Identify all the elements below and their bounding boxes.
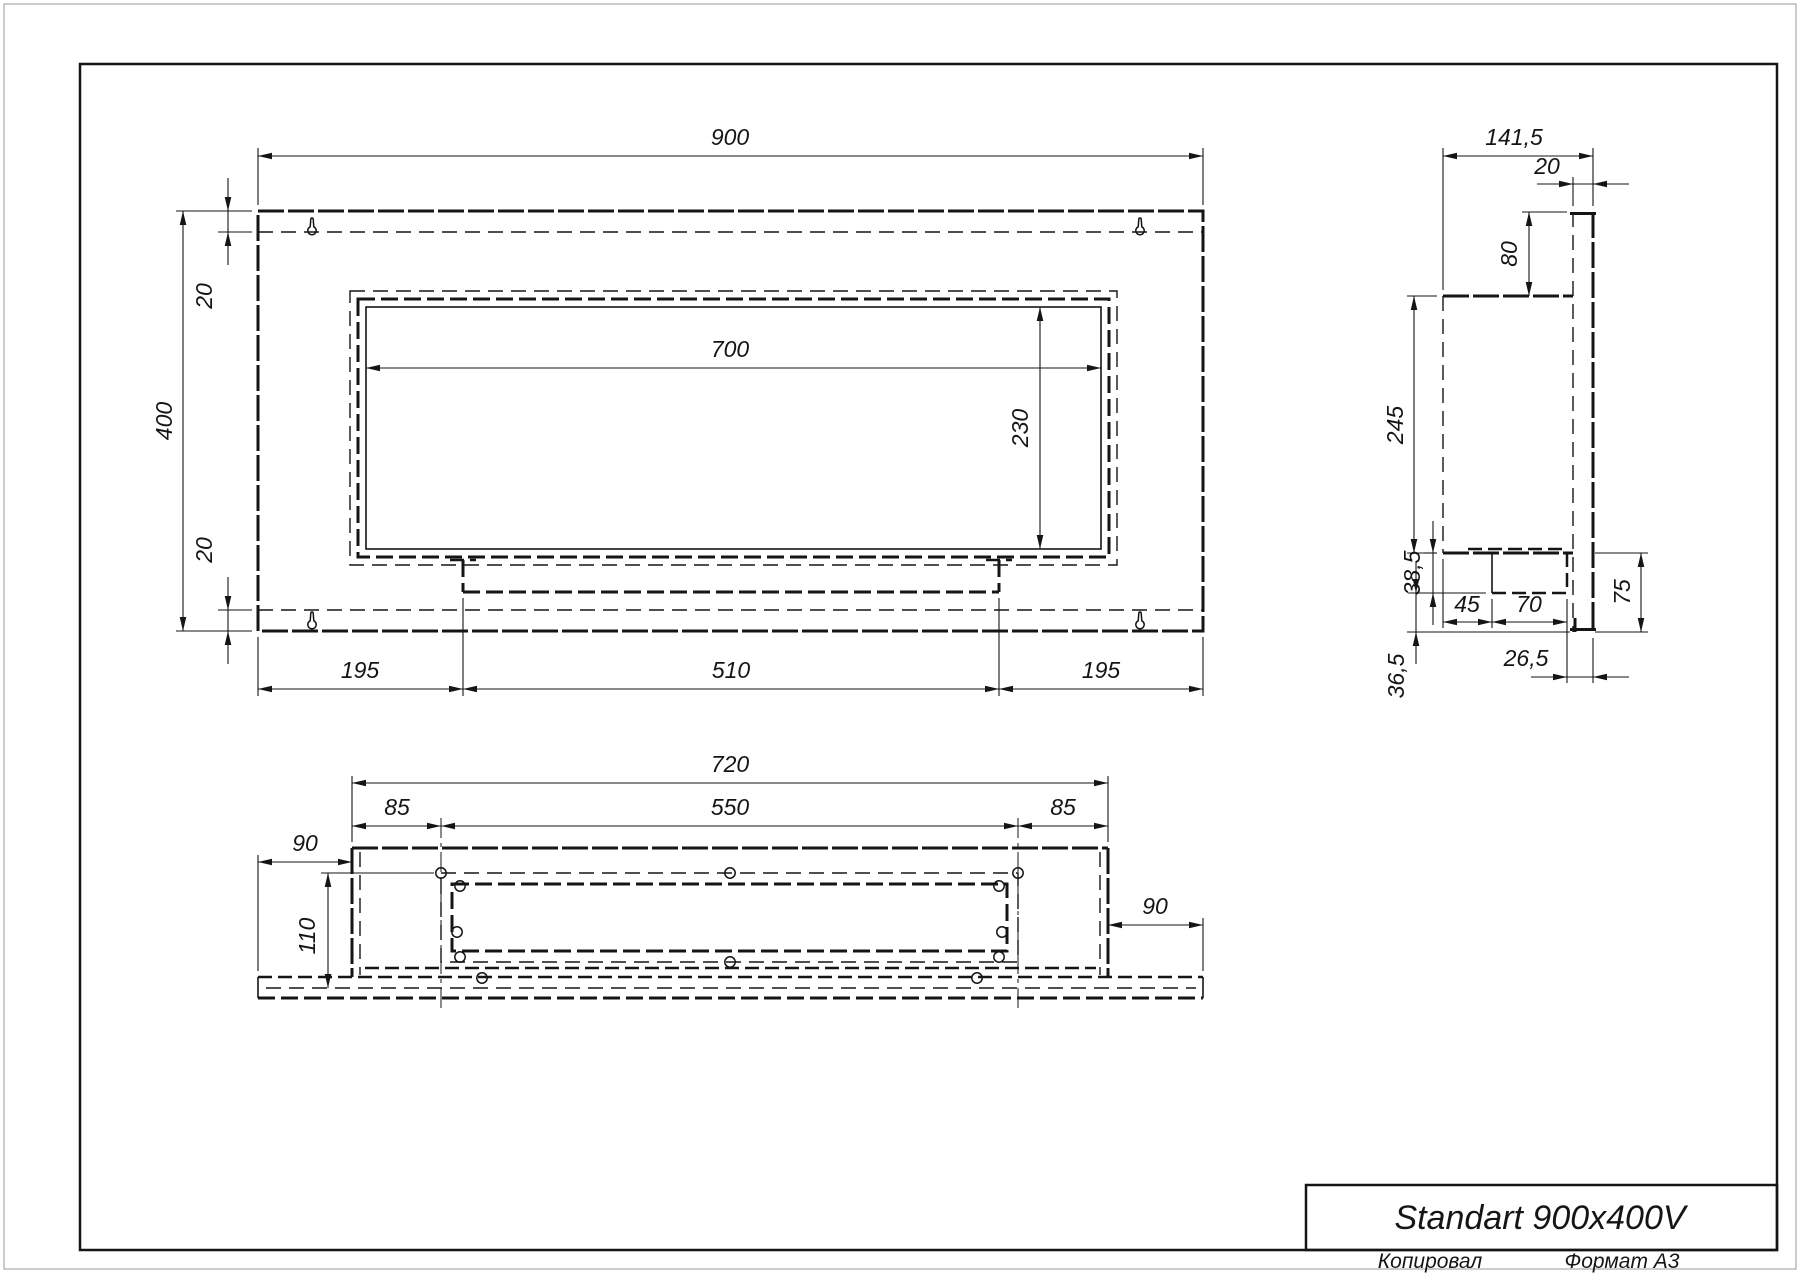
mounting-hole [994,952,1004,962]
side-view: 141,5 20 80 245 38,5 [1382,124,1648,698]
dim-side-body-height: 245 [1382,406,1408,446]
dim-side-tray-offset: 45 [1454,591,1480,617]
mounting-hole [455,881,465,891]
dim-front-top-flange: 20 [191,283,217,310]
copied-label: Копировал [1378,1250,1483,1273]
dim-front-right-margin: 195 [1082,657,1121,683]
format-label: Формат A3 [1565,1250,1680,1273]
dim-front-overall-width: 900 [711,124,750,150]
dim-bottom-left-step: 90 [292,830,318,856]
dim-side-tray-depth: 38,5 [1399,550,1425,595]
dim-bottom-right-step: 90 [1142,893,1168,919]
dim-side-plate-thickness: 20 [1533,153,1560,179]
dim-side-below-tray: 36,5 [1383,653,1409,698]
bottom-view: 720 85 550 85 90 110 90 [258,751,1203,1008]
mounting-hole [994,881,1004,891]
dim-front-opening-width: 700 [711,336,750,362]
dim-side-tray-gap: 26,5 [1503,645,1549,671]
dim-side-top-drop: 80 [1496,241,1522,267]
front-opening-outer-hidden [350,291,1117,565]
dim-bottom-body-width: 720 [711,751,750,777]
drawing-sheet: 900 400 20 20 700 230 [0,0,1800,1273]
page-edge [4,4,1796,1269]
sheet-frame [4,4,1796,1269]
technical-drawing: 900 400 20 20 700 230 [0,0,1800,1273]
title-block: Standart 900x400V Копировал Формат A3 [1306,1185,1777,1273]
dim-side-overall-depth: 141,5 [1485,124,1543,150]
front-view: 900 400 20 20 700 230 [151,124,1203,696]
dim-bottom-left-inset: 85 [384,794,410,820]
dim-front-bottom-flange: 20 [191,537,217,564]
dim-bottom-slot-width: 550 [711,794,750,820]
dim-bottom-right-inset: 85 [1050,794,1076,820]
dim-side-plate-below-shelf: 75 [1609,579,1635,605]
dim-side-tray-width: 70 [1516,591,1542,617]
dim-bottom-cavity-depth: 110 [294,917,320,954]
side-view-dimensions: 141,5 20 80 245 38,5 [1382,124,1648,698]
keyhole-slot-icon [308,612,316,629]
bottom-slot-outer-hidden [441,873,1018,962]
drawing-title: Standart 900x400V [1394,1199,1688,1237]
front-outer-contour [258,211,1203,631]
keyhole-slot-icon [1136,612,1144,629]
dim-front-left-margin: 195 [341,657,380,683]
mounting-hole [455,952,465,962]
bottom-slot-inner-hidden [452,884,1007,951]
dim-front-burner-width: 510 [712,657,751,683]
dim-front-opening-height: 230 [1007,409,1033,449]
dim-front-overall-height: 400 [151,402,177,441]
